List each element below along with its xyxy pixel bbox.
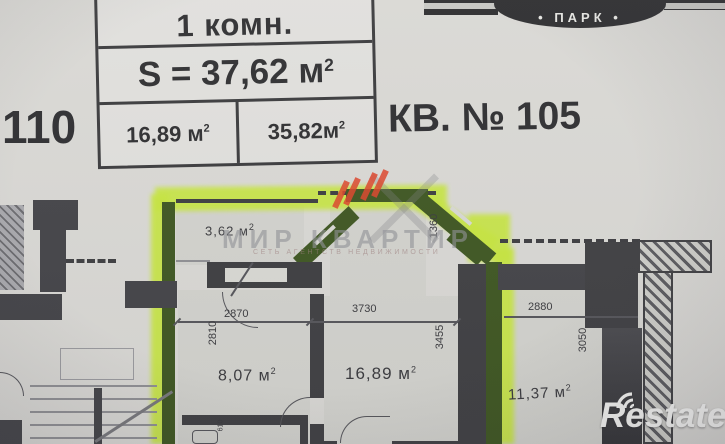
sup-2: 2	[565, 382, 572, 392]
left-edge-wall	[0, 205, 24, 290]
park-logo-badge: • ПАРК •	[494, 0, 666, 28]
room-type-cell: 1 комн.	[97, 0, 372, 46]
sup-2: 2	[203, 122, 209, 134]
banner-ribbon-right	[664, 0, 725, 10]
hatched-column-flange	[638, 240, 712, 273]
apartment-number-label: КВ. № 105	[388, 94, 582, 141]
dim-3050: 3050	[577, 312, 589, 368]
balcony-sill-line	[176, 260, 210, 262]
dim-2810: 2810	[207, 308, 219, 358]
neighbor-door-arc	[0, 372, 24, 396]
area-breakdown-row: 16,89 м2 35,82м2	[100, 96, 375, 166]
dimension-line-top	[178, 321, 458, 323]
restate-logo-waves-icon	[616, 384, 650, 410]
bathroom-fixture	[192, 430, 218, 444]
shaft-outline	[60, 348, 134, 380]
sup-2: 2	[411, 364, 417, 374]
left-wall-head	[33, 200, 78, 230]
dim-3455: 3455	[434, 309, 446, 365]
neighbor-apartment-number: 110	[2, 100, 76, 154]
total-area-cell: S = 37,62 м2	[98, 40, 373, 102]
banner-ribbon-left	[424, 0, 498, 15]
park-logo-text: • ПАРК •	[494, 10, 666, 25]
living-area-label: 16,89 м	[126, 120, 204, 148]
dim-2870: 2870	[224, 308, 248, 320]
sup-2: 2	[271, 366, 277, 376]
sup-2: 2	[324, 55, 334, 76]
partition-wall	[310, 294, 324, 398]
room-type-label: 1 комн.	[176, 6, 294, 45]
agency-watermark-tagline: СЕТЬ АГЕНТСТВ НЕДВИЖИМОСТИ	[253, 249, 440, 256]
sup-2: 2	[339, 119, 345, 131]
floorplan-photo: 1 комн. S = 37,62 м2 16,89 м2 35,82м2 • …	[0, 0, 725, 444]
room-main-area-label: 16,89 м2	[345, 364, 417, 384]
corridor-wall-right	[125, 281, 177, 308]
second-area-label: 35,82м	[267, 117, 339, 145]
dimension-line-neighbor	[504, 316, 638, 318]
partition-wall-stub	[310, 424, 324, 444]
area-value: 8,07 м	[218, 367, 271, 384]
area-value: 16,89 м	[345, 364, 411, 383]
area-cell-total: 35,82м2	[235, 99, 375, 163]
room-small-area-label: 8,07 м2	[218, 366, 277, 385]
stair-step	[30, 385, 157, 387]
dim-610: 610	[218, 411, 225, 441]
dim-3730: 3730	[352, 303, 376, 315]
corridor-wall-left	[0, 294, 62, 320]
bottom-left-wall	[0, 420, 22, 444]
dim-2880: 2880	[528, 301, 552, 313]
room-main-right-wall	[458, 264, 488, 444]
balcony-window-glass	[225, 268, 287, 282]
left-wall-stem	[40, 230, 66, 292]
total-area-label: S = 37,62 м	[137, 51, 324, 95]
room-neighbor-top-wall	[498, 264, 590, 290]
room-neighbor-area-label: 11,37 м2	[508, 382, 573, 403]
area-value: 11,37 м	[508, 384, 567, 404]
restate-logo: Restate	[600, 396, 725, 436]
left-door-dashed-line	[66, 259, 116, 263]
apartment-info-table: 1 комн. S = 37,62 м2 16,89 м2 35,82м2	[94, 0, 378, 169]
area-cell-living: 16,89 м2	[100, 102, 237, 166]
balcony-parapet-wall	[176, 199, 318, 203]
